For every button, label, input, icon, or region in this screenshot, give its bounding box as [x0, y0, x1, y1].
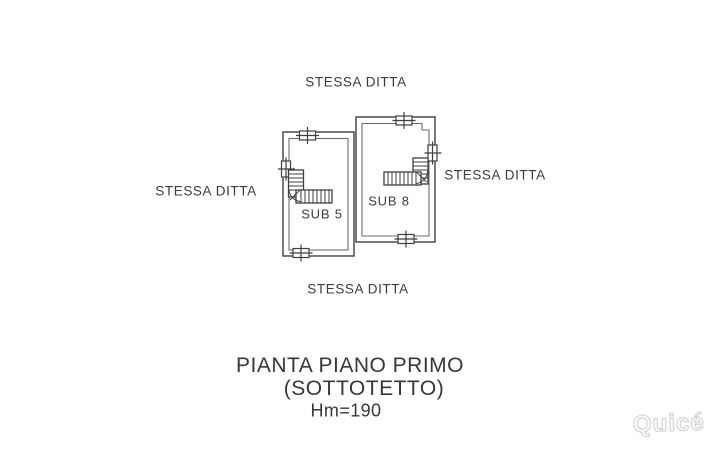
room-label-sub5: SUB 5 — [301, 207, 343, 222]
plan-title: PIANTA PIANO PRIMO — [236, 354, 464, 378]
plan-subtitle: (SOTTOTETTO) — [284, 377, 444, 401]
plan-height-note: Hm=190 — [311, 401, 382, 422]
sub8-stair-icon — [384, 158, 428, 185]
label-stessa-ditta-right: STESSA DITTA — [444, 168, 545, 183]
room-label-sub8: SUB 8 — [368, 194, 410, 209]
window-icon — [395, 231, 418, 248]
window-icon — [296, 127, 319, 144]
label-stessa-ditta-left: STESSA DITTA — [155, 184, 256, 199]
label-stessa-ditta-bottom: STESSA DITTA — [307, 282, 408, 297]
window-icon — [290, 245, 313, 262]
sub5-stair-icon — [289, 170, 333, 203]
watermark-logo: Quicé — [633, 409, 706, 439]
floorplan-canvas: STESSA DITTA STESSA DITTA STESSA DITTA S… — [0, 0, 709, 453]
window-icon — [393, 112, 416, 129]
label-stessa-ditta-top: STESSA DITTA — [305, 75, 406, 90]
